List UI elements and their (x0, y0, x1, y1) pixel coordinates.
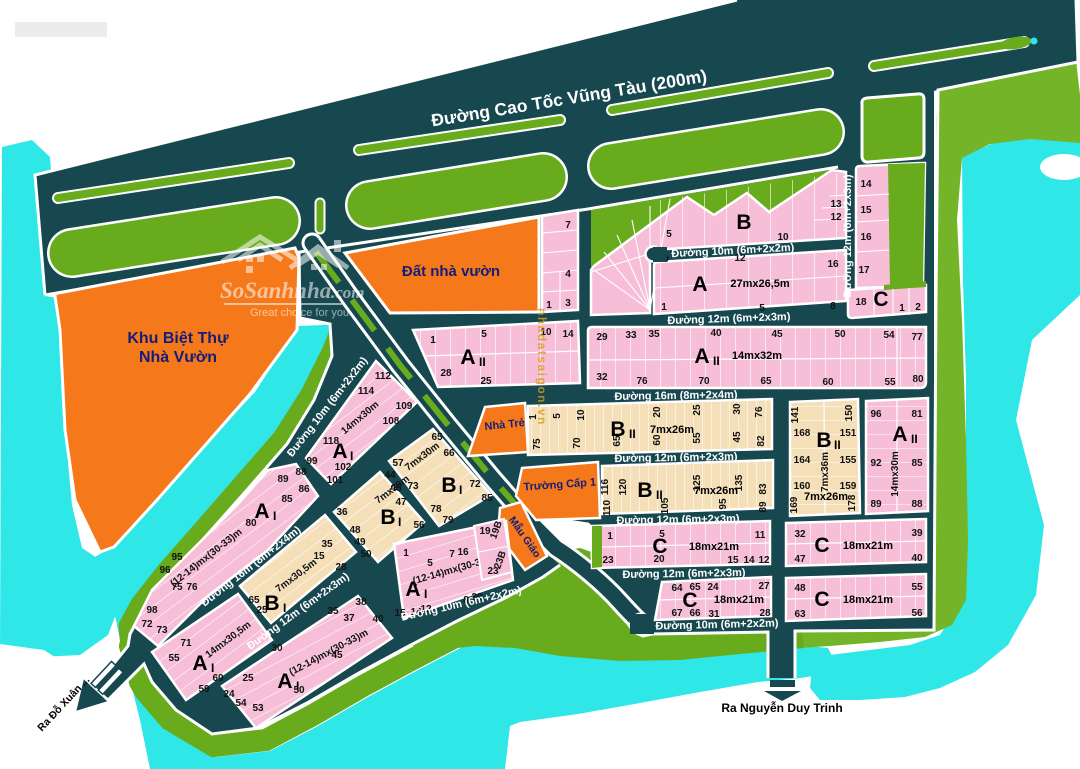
svg-text:78: 78 (430, 504, 442, 515)
svg-text:45: 45 (771, 329, 783, 340)
svg-text:A: A (892, 423, 907, 446)
svg-text:Ra Nguyễn Duy Trinh: Ra Nguyễn Duy Trinh (721, 700, 842, 715)
svg-text:66: 66 (443, 448, 455, 459)
svg-text:16: 16 (860, 232, 872, 243)
svg-text:1: 1 (899, 303, 905, 314)
svg-text:50: 50 (293, 685, 305, 696)
svg-text:35: 35 (648, 329, 660, 340)
svg-text:32: 32 (596, 372, 608, 383)
svg-text:14mx32m: 14mx32m (732, 350, 782, 362)
svg-text:7: 7 (449, 549, 455, 560)
svg-text:70: 70 (698, 376, 710, 387)
svg-text:nhadatsaigon.vn: nhadatsaigon.vn (535, 308, 549, 426)
svg-text:28: 28 (335, 562, 347, 573)
svg-text:88: 88 (295, 467, 307, 478)
svg-text:I: I (398, 515, 401, 529)
svg-text:Đường 12m (6m+2x3m): Đường 12m (6m+2x3m) (616, 513, 740, 527)
svg-text:89: 89 (758, 501, 769, 513)
svg-text:II: II (656, 488, 663, 502)
svg-text:18mx21m: 18mx21m (714, 594, 764, 606)
svg-text:B: B (380, 506, 395, 529)
svg-text:95: 95 (171, 552, 183, 563)
svg-text:95: 95 (718, 498, 729, 510)
svg-text:Khu Biệt Thự: Khu Biệt Thự (127, 330, 229, 347)
svg-text:57: 57 (392, 458, 404, 469)
svg-text:14: 14 (562, 329, 574, 340)
svg-text:B: B (816, 429, 831, 452)
svg-text:18mx21m: 18mx21m (689, 541, 739, 553)
svg-text:15: 15 (860, 205, 872, 216)
svg-text:15: 15 (727, 555, 739, 566)
svg-text:164: 164 (794, 455, 811, 466)
svg-text:33: 33 (625, 330, 637, 341)
svg-text:II: II (479, 355, 486, 369)
svg-text:SoSanhnha: SoSanhnha (220, 278, 331, 303)
svg-text:108: 108 (383, 416, 400, 427)
svg-text:178: 178 (847, 494, 858, 511)
svg-text:151: 151 (840, 428, 857, 439)
svg-text:Đường 16m (8m+2x4m): Đường 16m (8m+2x4m) (614, 389, 738, 403)
svg-text:12: 12 (830, 212, 842, 223)
svg-text:98: 98 (146, 605, 158, 616)
svg-text:72: 72 (141, 619, 153, 630)
svg-text:56: 56 (413, 520, 425, 531)
svg-text:14: 14 (743, 555, 755, 566)
svg-text:27: 27 (758, 581, 770, 592)
svg-text:101: 101 (327, 475, 344, 486)
svg-text:47: 47 (794, 554, 806, 565)
svg-text:99: 99 (306, 456, 318, 467)
svg-text:77: 77 (911, 332, 923, 343)
svg-text:I: I (424, 587, 427, 601)
svg-text:24: 24 (223, 689, 235, 700)
svg-text:109: 109 (396, 401, 413, 412)
svg-text:16: 16 (827, 259, 839, 270)
svg-text:168: 168 (794, 428, 811, 439)
svg-text:47: 47 (395, 497, 407, 508)
svg-text:25: 25 (242, 673, 254, 684)
svg-text:83: 83 (758, 483, 769, 495)
svg-text:82: 82 (756, 435, 767, 447)
svg-text:7: 7 (565, 220, 571, 231)
svg-text:II: II (834, 438, 841, 452)
svg-text:169: 169 (789, 496, 800, 513)
svg-text:5: 5 (659, 529, 665, 540)
svg-text:45: 45 (732, 431, 743, 443)
svg-text:1: 1 (430, 335, 436, 346)
svg-text:23: 23 (487, 566, 499, 577)
svg-text:35: 35 (321, 539, 333, 550)
svg-text:25: 25 (480, 376, 492, 387)
svg-text:23: 23 (602, 555, 614, 566)
svg-text:54: 54 (883, 330, 895, 341)
svg-text:27mx26,5m: 27mx26,5m (730, 278, 790, 290)
svg-text:120: 120 (618, 478, 629, 495)
svg-text:4: 4 (565, 269, 571, 280)
svg-text:40: 40 (372, 614, 384, 625)
svg-text:20: 20 (653, 554, 665, 565)
svg-text:II: II (629, 427, 636, 441)
svg-text:89: 89 (870, 499, 882, 510)
svg-text:Đường 12m (6m+2x3m): Đường 12m (6m+2x3m) (842, 174, 854, 297)
svg-text:60: 60 (212, 673, 224, 684)
svg-text:II: II (713, 354, 720, 368)
svg-text:Đất nhà vườn: Đất nhà vườn (402, 263, 500, 280)
svg-text:44: 44 (384, 470, 396, 481)
svg-text:14: 14 (860, 179, 872, 190)
svg-text:12: 12 (758, 555, 770, 566)
svg-text:49: 49 (354, 537, 366, 548)
svg-text:114: 114 (358, 386, 375, 397)
svg-text:76: 76 (754, 406, 765, 418)
svg-text:29: 29 (596, 332, 608, 343)
svg-text:5: 5 (552, 413, 563, 419)
svg-text:B: B (736, 211, 751, 234)
svg-text:55: 55 (168, 653, 180, 664)
svg-text:37: 37 (343, 613, 355, 624)
svg-text:A: A (254, 500, 269, 523)
svg-text:96: 96 (159, 565, 171, 576)
svg-text:79: 79 (442, 515, 454, 526)
svg-text:40: 40 (911, 553, 923, 564)
svg-text:14mx30m: 14mx30m (890, 451, 901, 497)
svg-text:35: 35 (327, 606, 339, 617)
svg-text:Đường 12m (6m+2x3m): Đường 12m (6m+2x3m) (614, 451, 738, 465)
svg-text:Great choice for you: Great choice for you (250, 307, 349, 319)
svg-text:II: II (911, 432, 918, 446)
svg-text:55: 55 (911, 582, 923, 593)
svg-text:80: 80 (912, 374, 924, 385)
svg-text:3: 3 (565, 298, 571, 309)
svg-text:76: 76 (636, 376, 648, 387)
svg-text:76: 76 (186, 582, 198, 593)
svg-text:28: 28 (440, 368, 452, 379)
svg-text:Đường 12m (6m+2x3m): Đường 12m (6m+2x3m) (622, 567, 746, 581)
svg-text:24: 24 (707, 582, 719, 593)
svg-text:65: 65 (431, 432, 443, 443)
svg-text:89: 89 (277, 474, 289, 485)
svg-text:Nhà Vườn: Nhà Vườn (139, 349, 217, 366)
svg-text:65: 65 (760, 376, 772, 387)
svg-text:72: 72 (469, 479, 481, 490)
svg-text:59: 59 (198, 684, 210, 695)
svg-text:40: 40 (710, 328, 722, 339)
svg-text:A: A (460, 346, 475, 369)
svg-text:112: 112 (375, 371, 392, 382)
svg-text:48: 48 (794, 583, 806, 594)
svg-text:5: 5 (481, 329, 487, 340)
svg-text:30: 30 (732, 403, 743, 415)
svg-text:110: 110 (602, 499, 613, 516)
svg-text:5: 5 (666, 229, 672, 240)
svg-text:60: 60 (822, 377, 834, 388)
svg-text:25: 25 (256, 605, 268, 616)
svg-text:11: 11 (755, 530, 766, 541)
svg-text:73: 73 (156, 625, 168, 636)
svg-text:7mx26m: 7mx26m (694, 485, 738, 497)
svg-text:96: 96 (870, 409, 882, 420)
svg-text:102: 102 (335, 462, 352, 473)
svg-text:7mx26m: 7mx26m (650, 424, 694, 436)
svg-text:116: 116 (600, 478, 611, 495)
svg-text:75: 75 (171, 582, 183, 593)
svg-text:13: 13 (830, 199, 842, 210)
svg-text:45: 45 (390, 483, 402, 494)
svg-text:I: I (459, 483, 462, 497)
svg-text:8: 8 (830, 301, 836, 312)
svg-text:I: I (350, 449, 353, 463)
svg-text:71: 71 (180, 638, 192, 649)
svg-text:118: 118 (323, 436, 340, 447)
svg-text:B: B (610, 418, 625, 441)
svg-text:.com: .com (331, 283, 365, 302)
svg-text:85: 85 (281, 494, 293, 505)
svg-text:67: 67 (671, 608, 683, 619)
svg-text:1: 1 (661, 302, 667, 313)
svg-text:36: 36 (336, 507, 348, 518)
svg-text:C: C (814, 534, 829, 557)
svg-text:85: 85 (481, 493, 493, 504)
svg-text:16: 16 (457, 547, 469, 558)
svg-text:32: 32 (794, 529, 806, 540)
svg-text:25: 25 (692, 404, 703, 416)
svg-text:I: I (273, 509, 276, 523)
svg-text:141: 141 (790, 406, 801, 423)
svg-text:B: B (441, 474, 456, 497)
svg-text:B: B (637, 479, 652, 502)
svg-text:7mx36m: 7mx36m (820, 452, 831, 492)
svg-text:66: 66 (689, 608, 701, 619)
svg-text:18mx21m: 18mx21m (843, 594, 893, 606)
svg-text:18: 18 (855, 297, 867, 308)
svg-text:20: 20 (652, 406, 663, 418)
svg-text:85: 85 (911, 458, 923, 469)
svg-text:30: 30 (271, 643, 283, 654)
svg-text:80: 80 (245, 518, 257, 529)
svg-text:70: 70 (572, 437, 583, 449)
svg-text:C: C (814, 588, 829, 611)
svg-text:50: 50 (360, 549, 372, 560)
svg-text:15: 15 (313, 551, 325, 562)
svg-text:A: A (692, 273, 707, 296)
svg-text:A: A (694, 345, 709, 368)
svg-text:54: 54 (235, 698, 247, 709)
svg-text:5: 5 (427, 558, 433, 569)
svg-text:48: 48 (349, 525, 361, 536)
svg-text:88: 88 (911, 499, 923, 510)
svg-text:92: 92 (870, 458, 882, 469)
svg-text:56: 56 (911, 608, 923, 619)
svg-text:17: 17 (858, 265, 870, 276)
svg-text:1: 1 (607, 531, 613, 542)
svg-text:75: 75 (532, 438, 543, 450)
svg-text:45: 45 (331, 650, 343, 661)
svg-text:86: 86 (298, 484, 310, 495)
svg-text:10: 10 (576, 409, 587, 421)
svg-text:50: 50 (834, 329, 846, 340)
svg-text:81: 81 (911, 409, 923, 420)
svg-text:64: 64 (671, 583, 683, 594)
svg-text:55: 55 (884, 377, 896, 388)
svg-text:1: 1 (403, 548, 409, 559)
svg-text:63: 63 (794, 609, 806, 620)
svg-text:150: 150 (844, 404, 855, 421)
svg-text:39: 39 (911, 528, 923, 539)
svg-text:53: 53 (252, 703, 264, 714)
svg-text:155: 155 (840, 455, 857, 466)
svg-text:2: 2 (915, 302, 921, 313)
svg-text:C: C (873, 288, 888, 311)
svg-text:18mx21m: 18mx21m (843, 540, 893, 552)
svg-text:38: 38 (355, 597, 367, 608)
